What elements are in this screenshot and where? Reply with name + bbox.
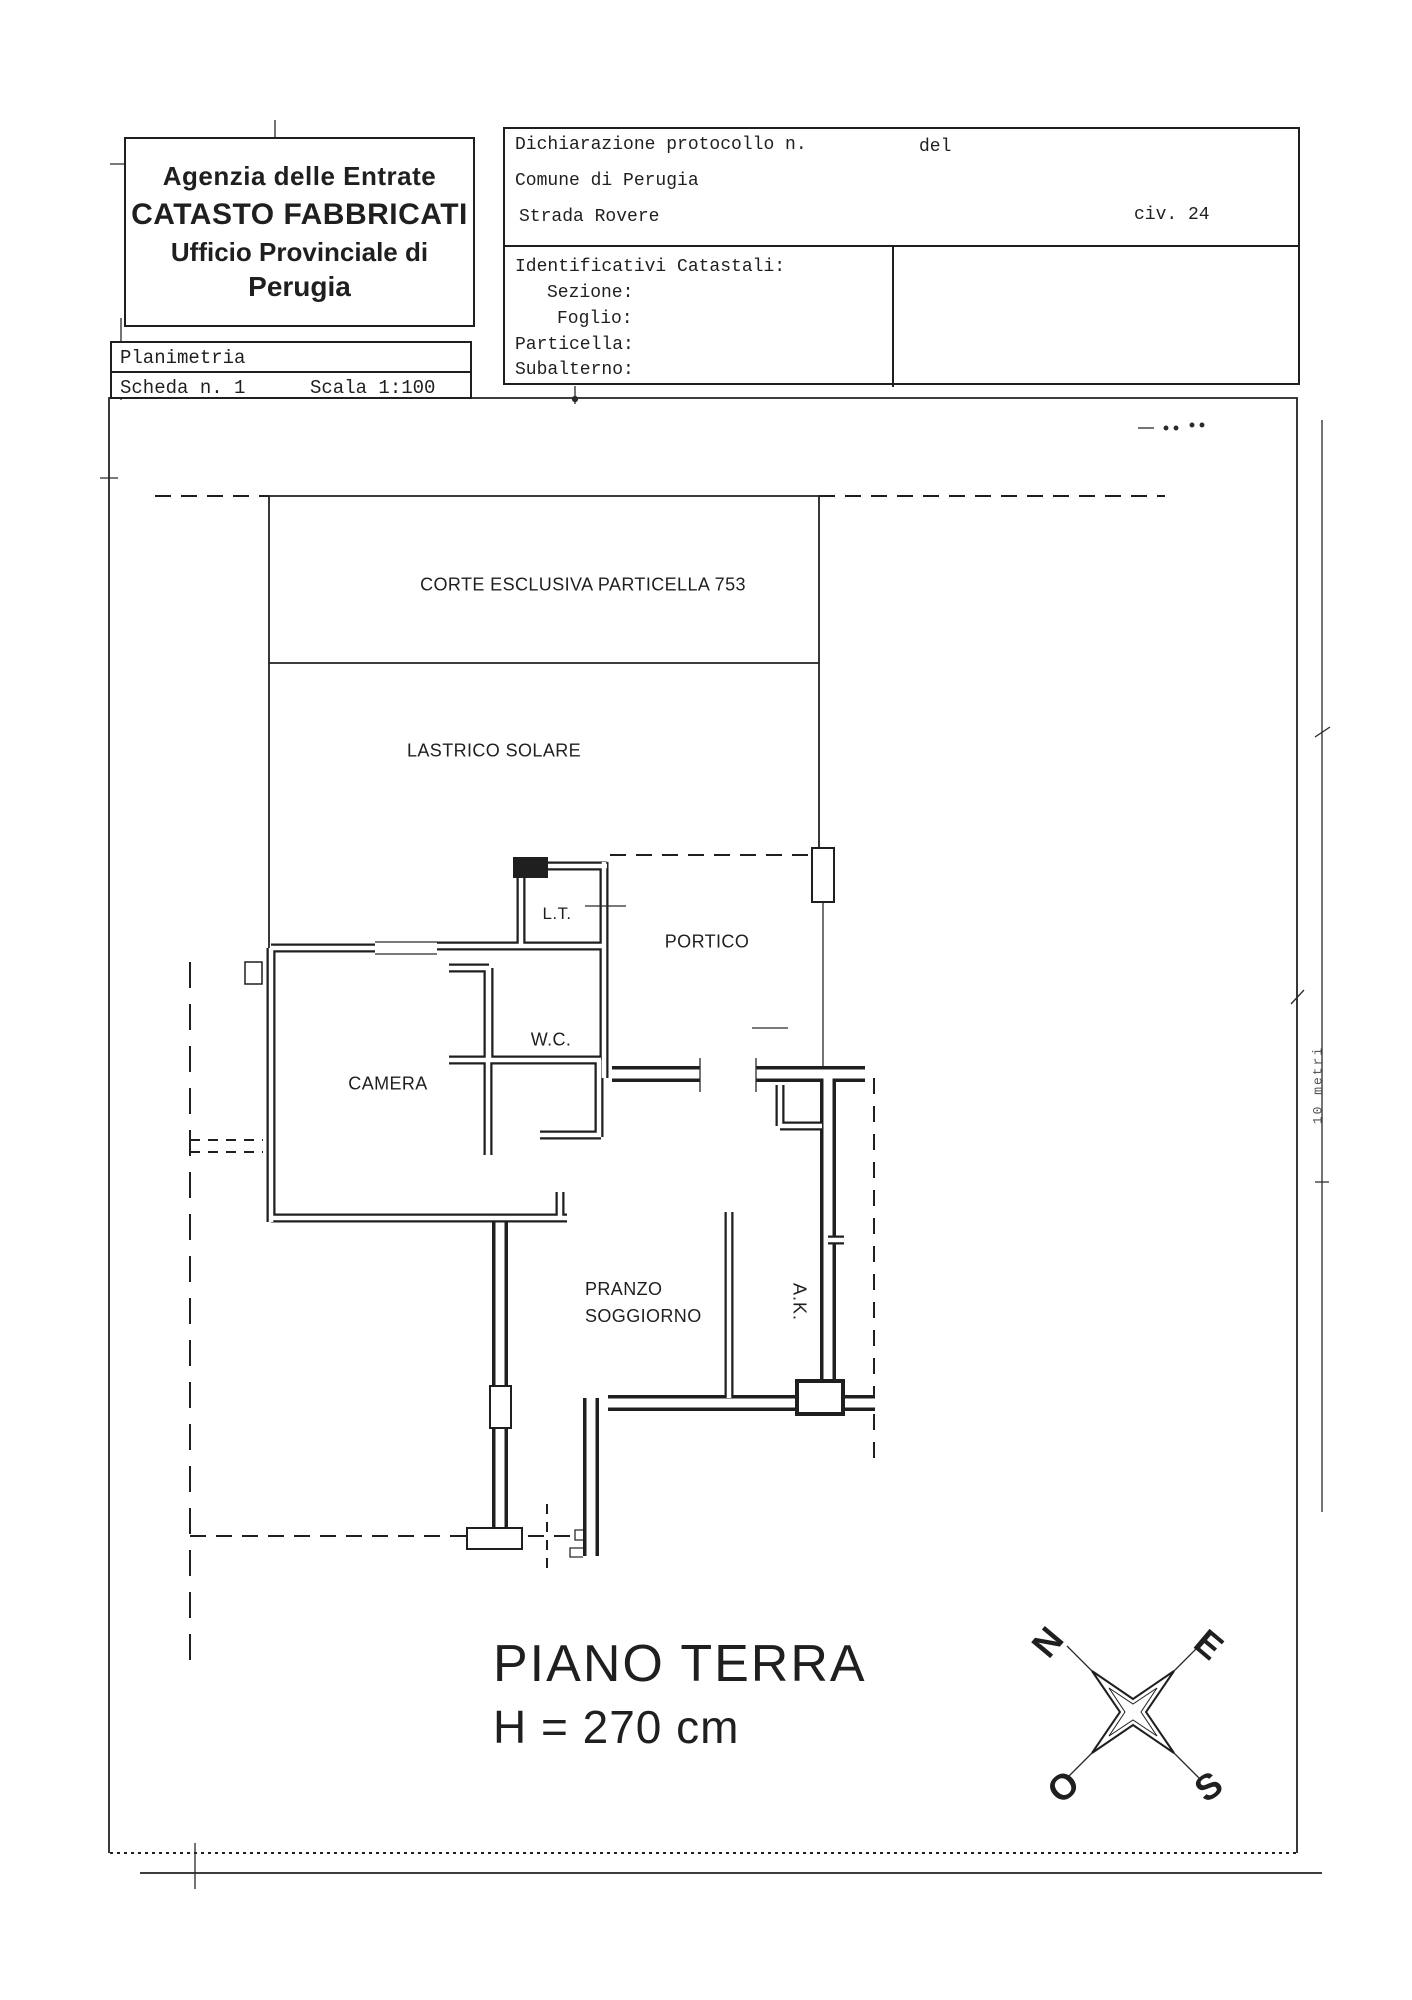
compass-rose: N E O S: [1023, 1619, 1231, 1811]
planimetria-row: Planimetria: [112, 343, 470, 373]
compass-south-letter: S: [1187, 1763, 1230, 1810]
declaration-protocol-label: Dichiarazione protocollo n.: [515, 135, 807, 155]
street-label: Strada Rovere: [519, 207, 659, 227]
room-label-ak: A.K.: [789, 1283, 810, 1321]
room-label-pranzo-soggiorno: PRANZO SOGGIORNO: [585, 1276, 702, 1330]
cadastral-title: Identificativi Catastali:: [515, 257, 785, 277]
wall-pier: [490, 1386, 511, 1428]
compass-north-letter: N: [1023, 1619, 1071, 1665]
compass-east-letter: E: [1187, 1621, 1232, 1668]
declaration-box: Dichiarazione protocollo n. del Comune d…: [503, 127, 1300, 385]
scheda-label: Scheda n. 1: [120, 377, 245, 399]
civic-number: civ. 24: [1134, 205, 1210, 225]
declaration-divider: [505, 245, 1298, 247]
agency-catasto: CATASTO FABBRICATI: [126, 198, 473, 232]
scale-note: 10 metri: [1311, 1046, 1326, 1124]
entry-steps: [570, 1530, 583, 1557]
pranzo-line2: SOGGIORNO: [585, 1303, 702, 1330]
left-small-box: [245, 962, 262, 984]
lt-corner-block: [513, 857, 548, 878]
pranzo-line1: PRANZO: [585, 1276, 702, 1303]
cadastral-floorplan-sheet: N E O S Agenzia delle Entrate CATASTO FA…: [0, 0, 1412, 2000]
agency-header-box: Agenzia delle Entrate CATASTO FABBRICATI…: [124, 137, 475, 327]
agency-name: Agenzia delle Entrate: [126, 161, 473, 192]
door-opening: [700, 1058, 756, 1092]
scala-label: Scala 1:100: [310, 377, 435, 399]
room-label-lastrico: LASTRICO SOLARE: [407, 741, 581, 762]
floor-height: H = 270 cm: [493, 1700, 740, 1754]
ak-block: [797, 1381, 843, 1414]
subalterno-label: Subalterno:: [515, 360, 634, 380]
declaration-del-label: del: [919, 137, 951, 157]
cadastral-vertical-divider: [892, 245, 894, 387]
planimetria-box: Planimetria Scheda n. 1 Scala 1:100: [110, 341, 472, 399]
floor-title: PIANO TERRA: [493, 1634, 867, 1694]
interior-walls: [271, 862, 844, 1398]
particella-label: Particella:: [515, 335, 634, 355]
entry-t-bar: [467, 1528, 522, 1549]
foglio-label: Foglio:: [557, 309, 633, 329]
door-ticks: [585, 906, 788, 1028]
room-label-wc: W.C.: [531, 1030, 572, 1051]
room-label-portico: PORTICO: [665, 932, 749, 953]
compass-west-letter: O: [1039, 1762, 1087, 1811]
portico-pillar: [812, 848, 834, 902]
room-label-lt: L.T.: [542, 904, 571, 924]
room-label-camera: CAMERA: [348, 1074, 427, 1095]
room-label-corte: CORTE ESCLUSIVA PARTICELLA 753: [420, 575, 746, 596]
camera-door-lintel: [375, 942, 437, 954]
agency-city: Perugia: [126, 271, 473, 303]
comune-label: Comune di Perugia: [515, 171, 699, 191]
agency-office: Ufficio Provinciale di: [126, 237, 473, 268]
sezione-label: Sezione:: [547, 283, 633, 303]
planimetria-label: Planimetria: [120, 347, 245, 369]
